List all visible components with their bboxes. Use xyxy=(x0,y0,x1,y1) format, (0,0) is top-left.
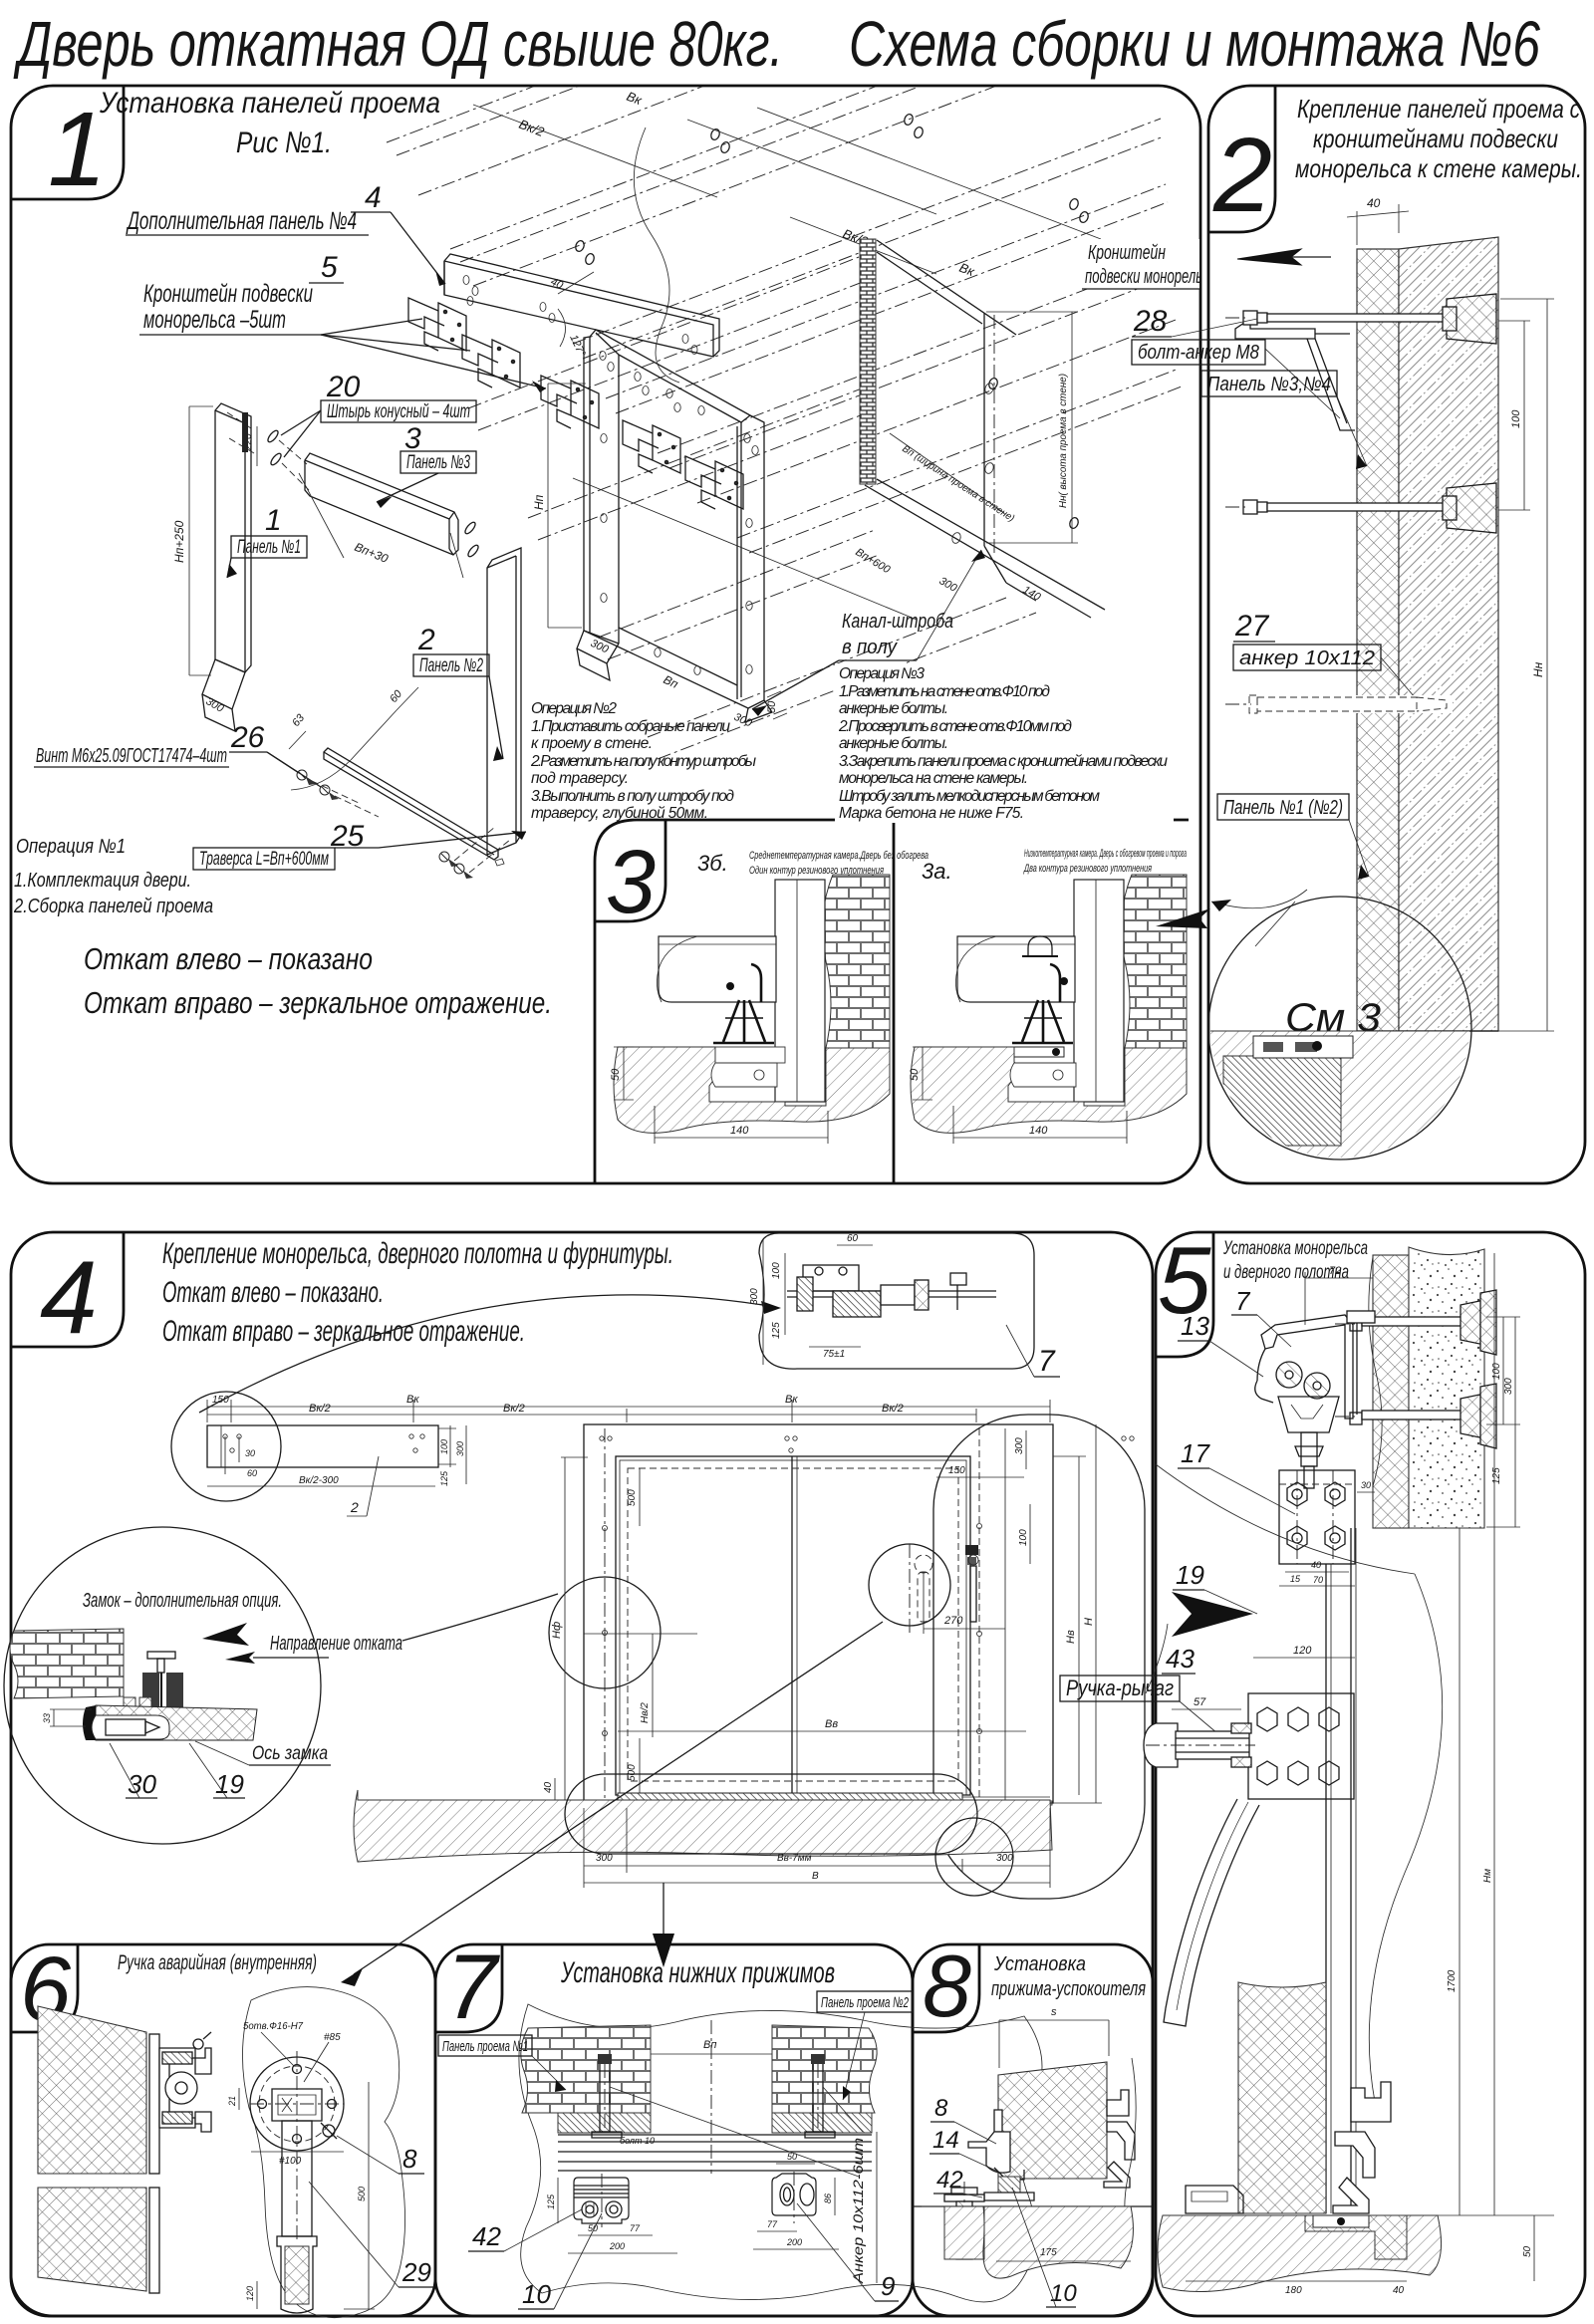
svg-text:300: 300 xyxy=(749,1288,760,1305)
svg-text:Установка панелей проема: Установка панелей проема xyxy=(99,87,440,120)
svg-text:траверсу, глубиной 50мм.: траверсу, глубиной 50мм. xyxy=(531,805,708,822)
svg-text:150: 150 xyxy=(212,1395,229,1406)
svg-text:300: 300 xyxy=(1014,1437,1025,1454)
svg-text:Рис №1.: Рис №1. xyxy=(236,127,332,159)
svg-text:19: 19 xyxy=(215,1769,244,1799)
svg-text:43: 43 xyxy=(1166,1644,1195,1674)
svg-text:Панель №3,№4: Панель №3,№4 xyxy=(1207,374,1331,395)
svg-text:120: 120 xyxy=(245,2286,255,2301)
svg-text:Два контура резинового уплотне: Два контура резинового уплотнения xyxy=(1023,863,1152,875)
svg-text:Канал-штроба: Канал-штроба xyxy=(842,611,953,633)
svg-text:200: 200 xyxy=(786,2237,802,2247)
svg-text:42: 42 xyxy=(936,2167,963,2194)
svg-text:200: 200 xyxy=(609,2241,625,2251)
svg-text:28: 28 xyxy=(1133,305,1168,338)
svg-text:5: 5 xyxy=(321,251,338,284)
svg-text:26: 26 xyxy=(230,721,265,754)
svg-text:2.Просверлить в стене отв.Ф10м: 2.Просверлить в стене отв.Ф10мм под xyxy=(838,718,1072,735)
svg-text:монорельса на стене камеры.: монорельса на стене камеры. xyxy=(839,770,1028,787)
svg-text:86: 86 xyxy=(823,2194,833,2203)
svg-text:100: 100 xyxy=(771,1262,782,1279)
svg-text:Дверь откатная ОД свыше 80кг.: Дверь откатная ОД свыше 80кг. xyxy=(13,8,783,80)
svg-text:300: 300 xyxy=(596,1853,613,1864)
svg-text:#85: #85 xyxy=(324,2032,341,2043)
svg-text:8: 8 xyxy=(402,2144,417,2174)
svg-text:Откат влево – показано: Откат влево – показано xyxy=(84,941,373,976)
svg-text:300: 300 xyxy=(996,1853,1013,1864)
svg-text:500: 500 xyxy=(627,1764,638,1781)
svg-text:100: 100 xyxy=(1510,409,1522,428)
svg-text:Установка нижних прижимов: Установка нижних прижимов xyxy=(560,1956,835,1989)
svg-text:Нф: Нф xyxy=(551,1622,563,1639)
svg-text:7: 7 xyxy=(446,1937,500,2038)
svg-text:Вк/2: Вк/2 xyxy=(503,1403,525,1415)
svg-text:болт 10: болт 10 xyxy=(620,2136,655,2146)
svg-text:анкер 10х112: анкер 10х112 xyxy=(1239,647,1375,669)
svg-text:Марка бетона не ниже F75.: Марка бетона не ниже F75. xyxy=(839,805,1024,822)
svg-text:#100: #100 xyxy=(279,2156,302,2167)
svg-text:Ось замка: Ось замка xyxy=(252,1743,328,1764)
svg-text:20: 20 xyxy=(326,371,361,403)
svg-text:500: 500 xyxy=(357,2187,367,2201)
svg-text:3.Выполнить в полу штробу под: 3.Выполнить в полу штробу под xyxy=(531,788,734,805)
svg-text:180: 180 xyxy=(1285,2285,1302,2296)
svg-text:8: 8 xyxy=(934,2095,948,2122)
svg-text:29: 29 xyxy=(401,2257,431,2287)
svg-text:Панель №1 (№2): Панель №1 (№2) xyxy=(1223,797,1343,819)
svg-text:21: 21 xyxy=(227,2096,237,2107)
svg-text:125: 125 xyxy=(546,2194,556,2209)
svg-text:33: 33 xyxy=(42,1713,52,1723)
svg-text:42: 42 xyxy=(472,2221,501,2251)
svg-text:300: 300 xyxy=(455,1441,465,1456)
svg-text:подвески монорельса: подвески монорельса xyxy=(1085,266,1216,288)
svg-text:50: 50 xyxy=(766,700,778,713)
svg-text:2: 2 xyxy=(350,1499,359,1515)
svg-text:500: 500 xyxy=(627,1489,638,1506)
svg-text:300: 300 xyxy=(1503,1378,1514,1395)
svg-text:Панель №1: Панель №1 xyxy=(237,537,301,558)
svg-text:болт-анкер М8: болт-анкер М8 xyxy=(1138,342,1259,364)
svg-text:Направление отката: Направление отката xyxy=(270,1633,402,1655)
svg-text:40: 40 xyxy=(1393,2285,1405,2296)
svg-text:8: 8 xyxy=(923,1937,971,2035)
svg-text:40: 40 xyxy=(1367,196,1381,210)
svg-text:Ручка аварийная (внутренняя): Ручка аварийная (внутренняя) xyxy=(118,1951,317,1974)
svg-text:140: 140 xyxy=(1029,1125,1048,1137)
svg-text:125: 125 xyxy=(439,1470,449,1486)
svg-text:3б.: 3б. xyxy=(697,851,728,876)
svg-text:57: 57 xyxy=(1194,1696,1206,1708)
svg-text:Н: Н xyxy=(1083,1618,1095,1626)
svg-text:100: 100 xyxy=(439,1439,449,1454)
svg-text:Установка: Установка xyxy=(993,1953,1086,1975)
svg-text:5отв.Ф16-Н7: 5отв.Ф16-Н7 xyxy=(243,2021,303,2032)
svg-text:125: 125 xyxy=(1491,1467,1502,1484)
svg-text:в полу: в полу xyxy=(842,637,898,658)
svg-text:Вк/2: Вк/2 xyxy=(309,1403,331,1415)
svg-text:кронштейнами подвески: кронштейнами подвески xyxy=(1313,124,1558,153)
svg-text:Вп: Вп xyxy=(703,2039,716,2051)
svg-text:2: 2 xyxy=(417,624,435,656)
svg-text:270: 270 xyxy=(943,1615,963,1627)
svg-text:Схема сборки и монтажа №6: Схема сборки и монтажа №6 xyxy=(849,8,1540,80)
svg-text:2.Сборка панелей проема: 2.Сборка панелей проема xyxy=(13,896,213,917)
svg-text:150: 150 xyxy=(948,1465,965,1476)
svg-text:монорельса –5шт: монорельса –5шт xyxy=(143,306,286,334)
svg-text:Винт М6х25.09ГОСТ17474–4шт: Винт М6х25.09ГОСТ17474–4шт xyxy=(36,745,227,767)
svg-text:Откат вправо – зеркальное отра: Откат вправо – зеркальное отражение. xyxy=(162,1315,525,1348)
svg-text:7: 7 xyxy=(1235,1286,1251,1316)
svg-text:27: 27 xyxy=(1234,610,1270,643)
svg-text:Панель №2: Панель №2 xyxy=(419,655,483,676)
svg-text:4: 4 xyxy=(40,1240,98,1356)
svg-text:Операция №3: Операция №3 xyxy=(839,665,925,682)
svg-text:анкерные болты.: анкерные болты. xyxy=(839,700,948,717)
svg-text:70: 70 xyxy=(1313,1575,1323,1585)
svg-text:Вк: Вк xyxy=(785,1394,798,1406)
svg-text:Откат влево – показано.: Откат влево – показано. xyxy=(162,1276,384,1309)
svg-text:50: 50 xyxy=(909,1068,921,1081)
svg-text:3.Закрепить панели проема с кр: 3.Закрепить панели проема с кронштейнами… xyxy=(839,753,1168,770)
svg-text:Нм: Нм xyxy=(1482,1869,1493,1883)
svg-text:60: 60 xyxy=(847,1233,859,1244)
svg-text:1: 1 xyxy=(265,504,282,537)
svg-text:s: s xyxy=(1051,2006,1057,2018)
svg-text:Установка монорельса: Установка монорельса xyxy=(1222,1238,1368,1259)
svg-text:40: 40 xyxy=(543,1781,554,1793)
svg-text:10: 10 xyxy=(522,2279,551,2309)
svg-text:19: 19 xyxy=(1176,1560,1204,1590)
svg-text:Кронштейн подвески: Кронштейн подвески xyxy=(143,280,313,308)
svg-text:Откат вправо – зеркальное отра: Откат вправо – зеркальное отражение. xyxy=(84,985,552,1020)
svg-text:2: 2 xyxy=(1212,117,1272,234)
svg-text:Низкотемпературная камера. Две: Низкотемпературная камера. Дверь с обогр… xyxy=(1024,848,1187,860)
svg-text:77: 77 xyxy=(767,2219,778,2229)
svg-text:125: 125 xyxy=(771,1322,782,1339)
svg-text:Среднетемпературная камера.Две: Среднетемпературная камера.Дверь без обо… xyxy=(749,850,929,862)
svg-text:Штробу залить мелкодисперсным: Штробу залить мелкодисперсным бетоном xyxy=(839,788,1100,805)
svg-text:Панель №3: Панель №3 xyxy=(406,452,470,473)
svg-text:3: 3 xyxy=(606,833,656,932)
svg-text:к проему в стене.: к проему в стене. xyxy=(531,735,653,752)
svg-text:60: 60 xyxy=(247,1468,257,1478)
svg-text:50: 50 xyxy=(1522,2245,1533,2257)
svg-text:Кронштейн: Кронштейн xyxy=(1088,242,1166,264)
svg-text:Нн( высота проема в стене): Нн( высота проема в стене) xyxy=(1058,374,1069,508)
svg-text:50: 50 xyxy=(610,1068,622,1081)
svg-text:монорельса к стене камеры.: монорельса к стене камеры. xyxy=(1295,153,1582,183)
svg-text:4: 4 xyxy=(365,181,382,214)
svg-text:Вк: Вк xyxy=(406,1394,419,1406)
svg-text:140: 140 xyxy=(730,1125,749,1137)
svg-text:14: 14 xyxy=(932,2127,959,2154)
svg-text:100: 100 xyxy=(1491,1363,1502,1380)
svg-text:1.Приставить собраные панели: 1.Приставить собраные панели xyxy=(531,718,730,735)
svg-text:1: 1 xyxy=(48,91,107,208)
svg-text:30: 30 xyxy=(1361,1480,1371,1490)
svg-text:Нн: Нн xyxy=(1531,661,1545,677)
svg-text:15: 15 xyxy=(1290,1574,1301,1584)
svg-text:под траверсу.: под траверсу. xyxy=(531,770,629,787)
svg-text:1.Комплектация двери.: 1.Комплектация двери. xyxy=(14,870,191,892)
svg-text:прижима-успокоителя: прижима-успокоителя xyxy=(991,1978,1146,2000)
svg-text:100: 100 xyxy=(1018,1529,1029,1546)
svg-text:Операция №1: Операция №1 xyxy=(16,836,126,858)
svg-text:Крепление монорельса, дверного: Крепление монорельса, дверного полотна и… xyxy=(162,1237,673,1270)
svg-text:Панель проема №1: Панель проема №1 xyxy=(442,2038,528,2055)
svg-text:Вв: Вв xyxy=(825,1718,838,1730)
svg-text:В: В xyxy=(812,1871,819,1882)
svg-text:9: 9 xyxy=(881,2271,895,2301)
svg-text:175: 175 xyxy=(1040,2247,1057,2258)
svg-text:3а.: 3а. xyxy=(922,859,952,884)
svg-text:Замок – дополнительная опция.: Замок – дополнительная опция. xyxy=(83,1590,282,1612)
svg-text:Дополнительная панель №4: Дополнительная панель №4 xyxy=(126,207,357,235)
svg-text:Вк/2: Вк/2 xyxy=(882,1403,904,1415)
svg-text:Операция №2: Операция №2 xyxy=(531,700,617,717)
svg-text:77: 77 xyxy=(630,2223,641,2233)
svg-text:Вв-7мм: Вв-7мм xyxy=(777,1853,812,1864)
svg-text:1700: 1700 xyxy=(1447,1969,1458,1992)
svg-text:120: 120 xyxy=(1293,1645,1312,1657)
svg-text:Траверса L=Вп+600мм: Траверса L=Вп+600мм xyxy=(199,849,329,870)
svg-text:50: 50 xyxy=(787,2152,797,2162)
svg-text:Ручка-рычаг: Ручка-рычаг xyxy=(1066,1676,1174,1700)
svg-text:1.Разметить на стене отв.Ф10 п: 1.Разметить на стене отв.Ф10 под xyxy=(839,683,1050,700)
svg-text:Анкер 10х112-6шт: Анкер 10х112-6шт xyxy=(850,2138,866,2285)
svg-text:40: 40 xyxy=(1311,1560,1321,1570)
svg-text:7: 7 xyxy=(1038,1345,1056,1378)
svg-text:Вк/2-300: Вк/2-300 xyxy=(299,1475,339,1486)
svg-text:2.Разметить на полу контур штр: 2.Разметить на полу контур штробы xyxy=(530,753,757,770)
svg-text:72: 72 xyxy=(1329,1265,1341,1277)
svg-text:Нв: Нв xyxy=(1065,1630,1077,1644)
svg-text:Крепление панелей проема с: Крепление панелей проема с xyxy=(1297,94,1580,124)
svg-text:3: 3 xyxy=(404,422,421,455)
svg-text:Штырь конусный – 4шт: Штырь конусный – 4шт xyxy=(327,401,470,422)
svg-text:75±1: 75±1 xyxy=(823,1349,845,1360)
svg-text:Нв/2: Нв/2 xyxy=(640,1702,651,1723)
svg-text:Панель проема №2: Панель проема №2 xyxy=(821,1994,909,2011)
svg-text:17: 17 xyxy=(1181,1438,1210,1468)
svg-text:13: 13 xyxy=(1181,1311,1209,1341)
svg-text:анкерные болты.: анкерные болты. xyxy=(839,735,948,752)
svg-text:30: 30 xyxy=(245,1448,255,1458)
svg-text:Нп+250: Нп+250 xyxy=(172,520,186,563)
svg-text:Нп: Нп xyxy=(532,494,546,510)
